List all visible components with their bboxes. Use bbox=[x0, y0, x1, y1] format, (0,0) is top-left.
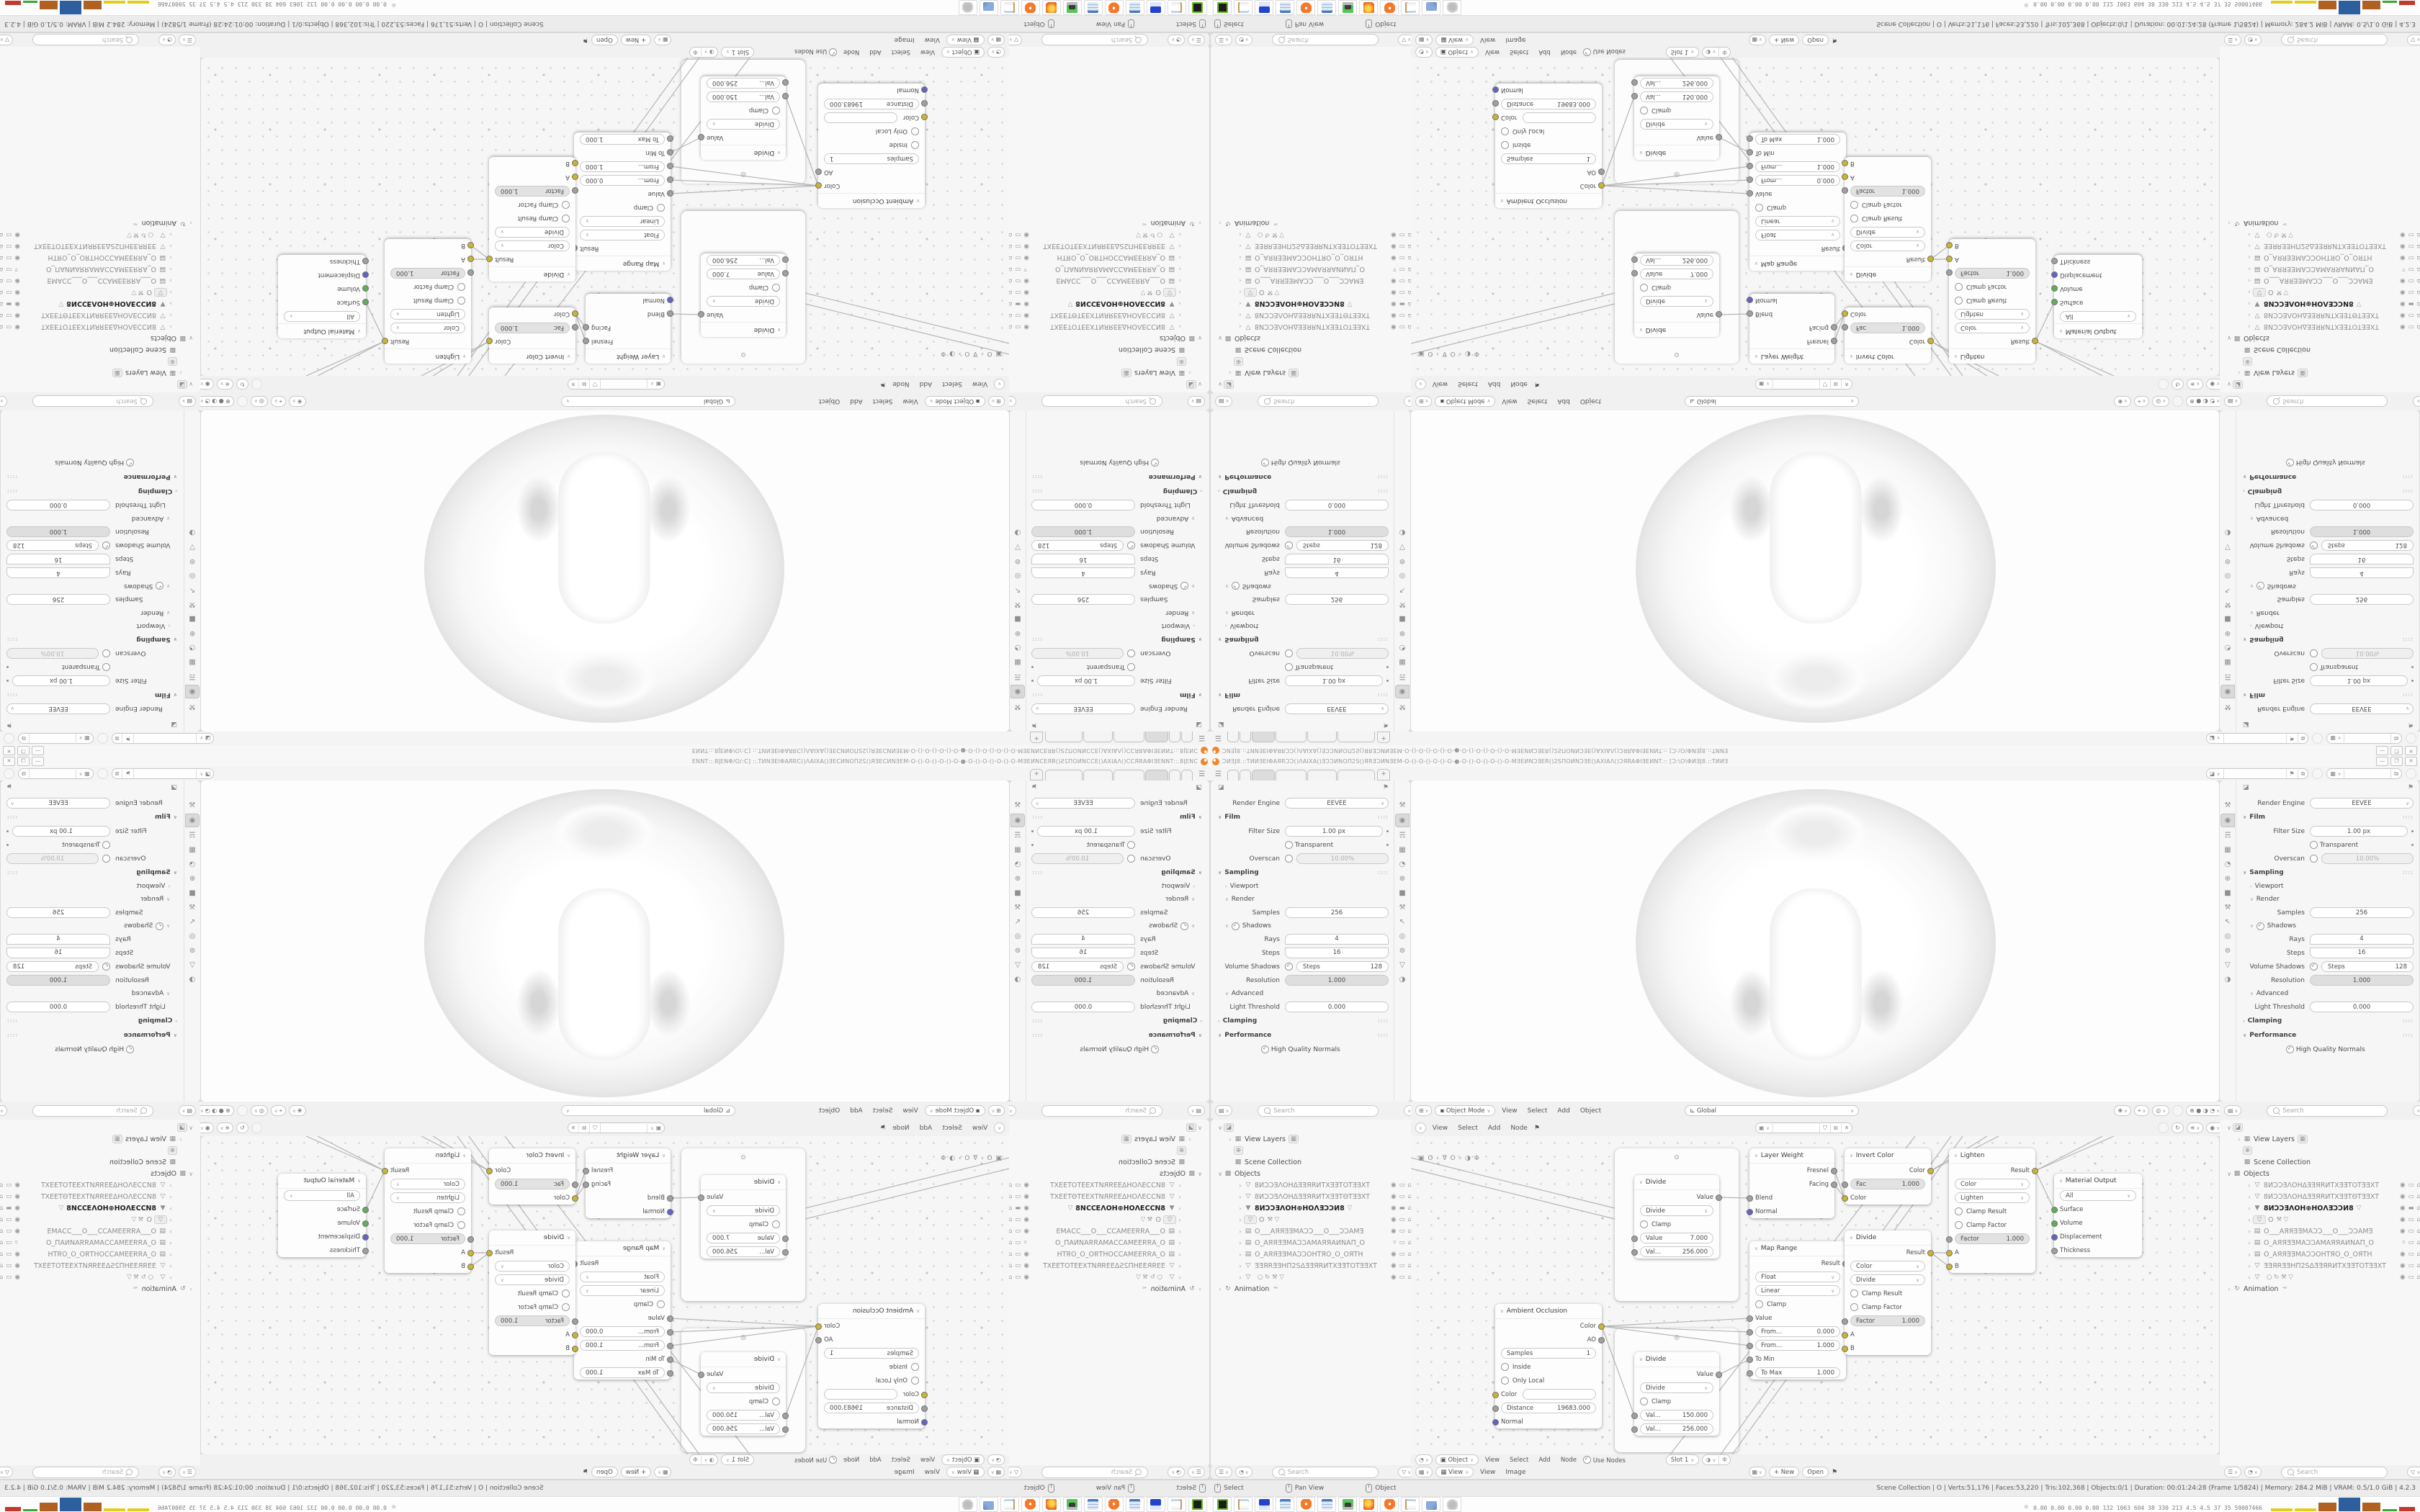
section-performance[interactable]: ∨ Performance:::: bbox=[1218, 1028, 1389, 1043]
node-lighten[interactable]: ∨ LightenResultColor∨Lighten∨Clamp Resul… bbox=[385, 239, 471, 364]
mode-select[interactable]: ▪ Object Mode ∨ bbox=[1435, 1105, 1495, 1116]
viewlayer-name-field[interactable] bbox=[2344, 769, 2391, 778]
disable-render-toggle[interactable]: ⌂ bbox=[2417, 231, 2420, 238]
options-chevron-button[interactable]: ∨ bbox=[0, 1105, 7, 1116]
taskbar-icon-console[interactable] bbox=[1188, 0, 1207, 15]
copy-icon[interactable]: ⧉ bbox=[2298, 734, 2308, 743]
node-dropdown[interactable]: Divide∨ bbox=[1640, 1382, 1713, 1393]
animate-dot[interactable] bbox=[6, 844, 9, 846]
menu-select[interactable]: Select bbox=[1524, 398, 1551, 405]
outliner-object-row[interactable]: ›▤O___AЯЯƎƎMAƆƆ___O___ƆƆAMƎ◉▭⌂ bbox=[1007, 1225, 1206, 1237]
value-field[interactable]: Steps128 bbox=[1296, 961, 1389, 972]
disable-render-toggle[interactable]: ⌂ bbox=[0, 231, 3, 238]
output-socket[interactable] bbox=[1716, 134, 1722, 140]
section-film[interactable]: ∨ Film:::: bbox=[6, 810, 177, 824]
input-socket[interactable] bbox=[1747, 176, 1753, 183]
input-socket[interactable] bbox=[782, 256, 789, 263]
expand-arrow[interactable]: › bbox=[1176, 1205, 1183, 1212]
taskbar-icon-notepad[interactable] bbox=[1168, 0, 1186, 15]
subsection-render[interactable]: ∨Render bbox=[6, 606, 177, 619]
outliner-object-row[interactable]: ›▼8ͶƆƆƎΛOH⊕HOΛƎƆƆͶ8▽◉▬⌂ bbox=[1214, 298, 1413, 310]
output-socket[interactable] bbox=[486, 338, 493, 344]
value-field[interactable]: 1.00 px bbox=[1037, 826, 1135, 837]
checkbox[interactable] bbox=[102, 855, 110, 863]
properties-tab-object-data[interactable]: ▽ bbox=[2221, 959, 2234, 971]
node-value-field[interactable]: Val...256.000 bbox=[1640, 1246, 1713, 1257]
copy-icon[interactable]: ⧉ bbox=[2391, 734, 2401, 743]
node-color-field[interactable] bbox=[824, 1389, 897, 1400]
properties-tab-constraints[interactable]: ⊚ bbox=[186, 555, 199, 567]
input-socket[interactable] bbox=[1747, 135, 1753, 142]
value-field[interactable]: 1.000 bbox=[6, 975, 110, 986]
material-slot-select[interactable]: Slot 1 ∨ bbox=[721, 47, 754, 58]
hide-eye-toggle[interactable]: ◉ bbox=[1023, 1193, 1028, 1200]
node-ao[interactable]: ∨ Ambient OcclusionColorAOSamples1Inside… bbox=[1495, 84, 1602, 208]
input-socket[interactable] bbox=[782, 93, 789, 99]
expand-arrow[interactable]: ∨ bbox=[1196, 1171, 1204, 1177]
disable-viewport-toggle[interactable]: ▭ bbox=[1015, 1239, 1021, 1246]
expand-arrow[interactable]: › bbox=[2246, 255, 2253, 261]
node-checkbox[interactable] bbox=[657, 204, 665, 212]
expand-arrow[interactable]: › bbox=[167, 1194, 174, 1200]
taskbar-icon-blender[interactable] bbox=[1021, 0, 1040, 15]
node-header[interactable]: ∨ Lighten bbox=[1949, 1148, 2035, 1164]
node-value-field[interactable]: Distance19683.000 bbox=[1501, 99, 1596, 109]
search-input[interactable]: Search bbox=[1041, 396, 1162, 408]
node-checkbox[interactable] bbox=[1755, 204, 1763, 212]
disable-viewport-toggle[interactable]: ▭ bbox=[2408, 1251, 2414, 1258]
image-view-select[interactable]: ▦ View ∨ bbox=[946, 35, 985, 45]
properties-tab-scene[interactable]: ◔ bbox=[186, 642, 199, 654]
node-divide2[interactable]: ∨ DivideValueDivide∨ClampVal...150.000Va… bbox=[701, 76, 786, 160]
menu-add[interactable]: Add bbox=[916, 381, 936, 388]
pin-icon[interactable]: ⚑ bbox=[1534, 1125, 1540, 1132]
hide-eye-toggle[interactable]: ◉ bbox=[1023, 254, 1028, 261]
hide-eye-toggle[interactable]: ◉ bbox=[14, 277, 19, 284]
node-header[interactable]: ∨ Divide bbox=[701, 322, 786, 337]
hide-eye-toggle[interactable]: ▿ bbox=[1023, 266, 1026, 273]
node-divide1[interactable]: ∨ DivideValueDivide∨ClampValue7.000Val..… bbox=[701, 1175, 786, 1259]
value-field[interactable]: 1.000 bbox=[1285, 526, 1389, 537]
taskbar-icon-documents[interactable] bbox=[1422, 0, 1440, 15]
disable-render-toggle[interactable]: ⌂ bbox=[0, 1274, 3, 1281]
properties-tab-output[interactable]: ☴ bbox=[186, 829, 199, 842]
node-dropdown[interactable]: Divide∨ bbox=[1640, 296, 1713, 307]
checkbox[interactable] bbox=[1151, 1045, 1159, 1053]
input-socket[interactable] bbox=[362, 1220, 369, 1227]
outliner-object-row[interactable]: ›▽O⚒ ▽◉▭⌂ bbox=[1214, 1214, 1413, 1225]
section-film[interactable]: ∨ Film:::: bbox=[1218, 810, 1389, 824]
input-socket[interactable] bbox=[1747, 163, 1753, 169]
proportional-button[interactable]: ◎ ∨ bbox=[251, 1105, 268, 1116]
output-socket[interactable] bbox=[1927, 1250, 1934, 1256]
disable-render-toggle[interactable]: ⌂ bbox=[2417, 266, 2420, 273]
section-sampling[interactable]: ∨ Sampling:::: bbox=[1218, 632, 1389, 647]
shading-mode-buttons[interactable]: ⊕ ● ◑ ◔ ∨ bbox=[197, 396, 234, 407]
input-socket[interactable] bbox=[2051, 1234, 2058, 1241]
taskbar-icon-gimp-disabled[interactable] bbox=[959, 0, 977, 15]
disable-viewport-toggle[interactable]: ▬ bbox=[6, 300, 12, 307]
value-field[interactable]: 16 bbox=[1031, 948, 1135, 958]
value-field[interactable]: 1.000 bbox=[2310, 975, 2414, 986]
node-dropdown[interactable]: Lighten∨ bbox=[390, 309, 465, 320]
node-divide1[interactable]: ∨ DivideValueDivide∨ClampValue7.000Val..… bbox=[1634, 253, 1719, 337]
animate-dot[interactable] bbox=[2411, 844, 2414, 846]
output-socket[interactable] bbox=[382, 338, 388, 344]
outliner-object-row[interactable]: ›▤O_AЯЯƎƎMAƆƆAMAЯЯAͶNAΠ_O▿▭⌂ bbox=[2223, 1237, 2420, 1248]
disable-viewport-toggle[interactable]: ▭ bbox=[2408, 231, 2414, 238]
node-invertcolor[interactable]: ∨ Invert ColorColorFac1.000Color bbox=[1845, 307, 1931, 364]
taskbar-icon-gimp-disabled[interactable] bbox=[959, 1497, 977, 1512]
value-field[interactable]: Steps128 bbox=[1031, 961, 1124, 972]
node-divide3[interactable]: ∨ DivideResultColor∨Divide∨Clamp ResultC… bbox=[489, 157, 575, 282]
properties-tab-view-layer[interactable]: ▦ bbox=[186, 656, 199, 668]
hide-eye-toggle[interactable]: ◉ bbox=[2400, 1251, 2405, 1258]
maximize-button[interactable]: ❐ bbox=[2390, 757, 2403, 766]
input-socket[interactable] bbox=[921, 114, 928, 120]
node-value-field[interactable]: To Max1.000 bbox=[580, 1367, 665, 1378]
material-slot-select[interactable]: Slot 1 ∨ bbox=[721, 1454, 754, 1465]
node-value-field[interactable]: Distance19683.000 bbox=[824, 1403, 919, 1413]
node-value-field[interactable]: Factor1.000 bbox=[495, 186, 570, 197]
outliner-object-row[interactable]: ›▤O_AЯЯƎƎMAƆƆAMAЯЯAͶNAΠ_O▿▭⌂ bbox=[1007, 264, 1206, 275]
output-socket[interactable] bbox=[815, 168, 822, 175]
menu-select[interactable]: Select bbox=[938, 381, 966, 388]
outliner-row-objects[interactable]: ∨▩Objects bbox=[1007, 333, 1206, 344]
hide-eye-toggle[interactable]: ◉ bbox=[1391, 312, 1396, 319]
gizmo-button[interactable]: ❀ ∨ bbox=[289, 1105, 305, 1116]
input-socket[interactable] bbox=[1946, 256, 1953, 262]
disable-viewport-toggle[interactable]: ▭ bbox=[1015, 312, 1021, 319]
workspace-tab-6[interactable] bbox=[1337, 732, 1375, 742]
expand-arrow[interactable]: › bbox=[1176, 1251, 1183, 1258]
outliner-object-row[interactable]: ›▽8ͶƆƆƎΛOHΔƎƎЯRͶTXƎƎTOTƎƎXT◉▭⌂ bbox=[1214, 321, 1413, 333]
taskbar-icon-blender[interactable] bbox=[1105, 1497, 1124, 1512]
disable-viewport-toggle[interactable]: ▭ bbox=[2408, 1262, 2414, 1269]
scene-selector[interactable]: ◪ ∨ ⚑ ⧉ bbox=[2206, 733, 2309, 744]
output-socket[interactable] bbox=[698, 311, 704, 318]
properties-tab-material[interactable]: ◑ bbox=[2221, 526, 2234, 539]
proportional-button[interactable]: ◎ ∨ bbox=[2152, 396, 2169, 407]
node-checkbox[interactable] bbox=[1640, 1220, 1648, 1228]
section-film[interactable]: ∨ Film:::: bbox=[1031, 688, 1202, 702]
viewport-3d[interactable] bbox=[201, 780, 1009, 1102]
expand-arrow[interactable]: › bbox=[2246, 243, 2253, 250]
input-socket[interactable] bbox=[572, 1182, 578, 1188]
expand-arrow[interactable]: › bbox=[187, 1286, 194, 1292]
workspace-tab-2[interactable] bbox=[1240, 732, 1251, 742]
checkbox[interactable] bbox=[2310, 855, 2318, 863]
taskbar-icon-computer[interactable] bbox=[1338, 0, 1357, 15]
expand-arrow[interactable]: › bbox=[2246, 1205, 2253, 1212]
properties-tab-render[interactable]: ◉ bbox=[185, 814, 200, 827]
options-chevron-button[interactable]: ∨ bbox=[0, 396, 7, 407]
disable-render-toggle[interactable]: ⌂ bbox=[0, 1239, 3, 1246]
disable-render-toggle[interactable]: ⌂ bbox=[0, 289, 3, 296]
properties-tab-scene[interactable]: ◔ bbox=[1396, 642, 1409, 654]
outliner-row-scene-collection[interactable]: ▩Scene Collection bbox=[2223, 344, 2420, 356]
subsection-advanced[interactable]: ∨Advanced bbox=[2243, 512, 2414, 525]
hide-eye-toggle[interactable]: ◉ bbox=[2400, 1205, 2405, 1212]
disable-render-toggle[interactable]: ⌂ bbox=[0, 1228, 3, 1235]
properties-tab-object-data[interactable]: ▽ bbox=[1396, 959, 1409, 971]
input-socket[interactable] bbox=[572, 160, 578, 166]
outliner-object-row[interactable]: ›▼8ͶƆƆƎΛOH⊕HOΛƎƆƆͶ8▽◉▬⌂ bbox=[1214, 1202, 1413, 1214]
hide-eye-toggle[interactable]: ◉ bbox=[1391, 277, 1396, 284]
disable-render-toggle[interactable]: ⌂ bbox=[0, 1216, 3, 1223]
menu-view[interactable]: View bbox=[1498, 398, 1520, 405]
shader-node-canvas[interactable]: ⊙◎∨ DivideValueDivide∨ClampValue7.000Val… bbox=[1411, 58, 2219, 376]
outliner-object-row[interactable]: ›▽ƎƎЯRƎƎHΠ2SΔƎƎЯRͶTXƎƎTOTƎƎXT◉▭⌂ bbox=[0, 240, 197, 252]
expand-arrow[interactable]: › bbox=[2246, 1263, 2253, 1269]
menu-object[interactable]: Object bbox=[1577, 398, 1605, 405]
close-button[interactable]: ✕ bbox=[2405, 757, 2417, 766]
node-materialoutput[interactable]: ∨ Material OutputAll∨SurfaceVolumeDispla… bbox=[278, 255, 366, 338]
scene-name-field[interactable] bbox=[2224, 734, 2287, 743]
node-dropdown[interactable]: Linear∨ bbox=[1755, 1285, 1840, 1296]
outliner-row-animation[interactable]: ›↻Animation⁴² bbox=[1007, 217, 1206, 229]
outliner-row-animation[interactable]: ›↻Animation⁴² bbox=[1214, 217, 1413, 229]
taskbar-icon-notepad[interactable] bbox=[1234, 1497, 1252, 1512]
input-socket[interactable] bbox=[782, 1249, 789, 1256]
animate-dot[interactable] bbox=[1031, 666, 1034, 668]
editor-type-button[interactable]: ◔ ∨ bbox=[987, 47, 1005, 58]
output-socket[interactable] bbox=[1831, 1168, 1837, 1174]
menu-view[interactable]: View bbox=[1429, 381, 1451, 388]
disable-viewport-toggle[interactable]: ▭ bbox=[2408, 277, 2414, 284]
workspace-tab-4[interactable] bbox=[1276, 770, 1307, 780]
outliner-search-input[interactable]: Search bbox=[1272, 1467, 1379, 1478]
outliner-object-row[interactable]: ›▤O_AЯЯƎƎMAƆƆAMAЯЯAͶNAΠ_O▿▭⌂ bbox=[0, 1237, 197, 1248]
disable-viewport-toggle[interactable]: ▭ bbox=[1015, 277, 1021, 284]
hide-eye-toggle[interactable]: ◉ bbox=[2400, 1274, 2405, 1281]
expand-arrow[interactable]: › bbox=[2246, 1251, 2253, 1258]
node-divide1[interactable]: ∨ DivideValueDivide∨ClampValue7.000Val..… bbox=[701, 253, 786, 337]
outliner-object-row[interactable]: ›▽○ ↻ ⚒ ▽◉▭⌂ bbox=[1007, 1272, 1206, 1283]
output-socket[interactable] bbox=[1927, 1168, 1934, 1174]
gizmo-button[interactable]: ❀ ∨ bbox=[289, 396, 305, 407]
outliner-object-row[interactable]: ›▤O_AЯЯƎƎMAƆƆAMAЯЯAͶNAΠ_O▿▭⌂ bbox=[1214, 264, 1413, 275]
properties-tab-material[interactable]: ◑ bbox=[2221, 973, 2234, 986]
properties-tab-physics[interactable]: ◎ bbox=[2221, 570, 2234, 582]
properties-tab-physics[interactable]: ◎ bbox=[2221, 930, 2234, 942]
output-socket[interactable] bbox=[815, 1337, 822, 1344]
expand-arrow[interactable]: › bbox=[1216, 1286, 1224, 1292]
outliner-search-input[interactable]: Search bbox=[32, 1467, 139, 1478]
disable-render-toggle[interactable]: ⌂ bbox=[2417, 323, 2420, 330]
outliner-object-row[interactable]: ›▽ƎƎЯRƎƎHΠ2SΔƎƎЯRͶTXƎƎTOTƎƎXT◉▭⌂ bbox=[1007, 1260, 1206, 1272]
value-field[interactable]: 10.00% bbox=[1296, 853, 1389, 864]
output-socket[interactable] bbox=[1598, 1323, 1605, 1330]
menu-view[interactable]: View bbox=[917, 49, 938, 56]
menu-icon[interactable]: ☰ bbox=[1215, 734, 1222, 742]
outliner-row-root[interactable]: ∨◪ bbox=[0, 379, 197, 390]
value-field[interactable]: 256 bbox=[6, 907, 110, 918]
expand-arrow[interactable]: › bbox=[1237, 243, 1244, 250]
properties-tab-material[interactable]: ◑ bbox=[1396, 973, 1409, 986]
overlays-toggle[interactable] bbox=[2172, 1105, 2183, 1116]
search-input[interactable]: Search bbox=[2267, 1105, 2388, 1117]
disable-viewport-toggle[interactable]: ▭ bbox=[2408, 323, 2414, 330]
value-field[interactable]: 16 bbox=[2310, 554, 2414, 565]
node-materialoutput[interactable]: ∨ Material OutputAll∨SurfaceVolumeDispla… bbox=[2054, 255, 2142, 338]
taskbar-icon-documents[interactable] bbox=[980, 1497, 998, 1512]
editor-type-button[interactable]: ▤ ∨ bbox=[179, 396, 196, 407]
disable-viewport-toggle[interactable]: ▭ bbox=[1399, 1251, 1405, 1258]
filter-button[interactable]: ☰ ∨ bbox=[1188, 1467, 1205, 1477]
value-field[interactable]: 1.00 px bbox=[1285, 826, 1383, 837]
filter-button[interactable]: ☰ ∨ bbox=[1215, 1467, 1232, 1477]
minimize-button[interactable]: — bbox=[2376, 746, 2388, 755]
display-mode-button[interactable]: ◔ ∨ bbox=[1168, 35, 1185, 45]
expand-arrow[interactable]: › bbox=[1176, 232, 1183, 238]
node-checkbox[interactable] bbox=[772, 1398, 780, 1405]
input-socket[interactable] bbox=[2051, 285, 2058, 292]
input-socket[interactable] bbox=[1946, 269, 1953, 276]
node-dropdown[interactable]: Color∨ bbox=[495, 240, 570, 251]
hide-eye-toggle[interactable]: ◉ bbox=[1391, 300, 1396, 307]
outliner-object-row[interactable]: ›▽O⚒ ▽◉▭⌂ bbox=[2223, 1214, 2420, 1225]
expand-arrow[interactable]: ∨ bbox=[1196, 336, 1204, 342]
outliner-row-view-layers[interactable]: ›▦View Layers▦ bbox=[2223, 367, 2420, 379]
outliner-object-row[interactable]: ›▽ƎƎЯRƎƎHΠ2SΔƎƎЯRͶTXƎƎTOTƎƎXT◉▭⌂ bbox=[2223, 1260, 2420, 1272]
menu-add[interactable]: Add bbox=[1554, 398, 1573, 405]
pin-icon[interactable]: ⚑ bbox=[6, 784, 12, 791]
disable-viewport-toggle[interactable]: ▭ bbox=[1015, 254, 1021, 261]
node-dropdown[interactable]: Float∨ bbox=[580, 230, 665, 240]
material-slot-select[interactable]: Slot 1 ∨ bbox=[1666, 47, 1699, 58]
properties-tab-render[interactable]: ◉ bbox=[1395, 814, 1410, 827]
input-socket[interactable] bbox=[1631, 1413, 1638, 1419]
node-value-field[interactable]: Value7.000 bbox=[707, 1233, 780, 1243]
section-film[interactable]: ∨ Film:::: bbox=[2243, 688, 2414, 702]
expand-arrow[interactable]: › bbox=[1237, 289, 1244, 296]
input-socket[interactable] bbox=[921, 100, 928, 107]
node-dropdown[interactable]: Float∨ bbox=[1755, 1272, 1840, 1282]
disable-viewport-toggle[interactable]: ▭ bbox=[1015, 323, 1021, 330]
snap-target-button[interactable]: ↻ bbox=[2172, 1122, 2184, 1133]
open-image-button[interactable]: Open bbox=[1802, 1467, 1829, 1477]
value-field[interactable]: 4 bbox=[1285, 934, 1389, 945]
disable-render-toggle[interactable]: ⌂ bbox=[0, 1182, 3, 1189]
outliner-object-row[interactable]: ›▤O_AЯЯƎƎMAƆƆOHTЯO_O_OЯTH◉▭⌂ bbox=[2223, 252, 2420, 264]
outliner-row-scene-collection[interactable]: ▩Scene Collection bbox=[1214, 1156, 1413, 1168]
expand-arrow[interactable]: › bbox=[167, 1274, 174, 1281]
checkbox[interactable] bbox=[2310, 963, 2318, 971]
workspace-tab-5[interactable] bbox=[1083, 732, 1113, 742]
node-value-field[interactable]: Value7.000 bbox=[707, 269, 780, 279]
node-value-field[interactable]: Val...256.000 bbox=[707, 78, 780, 89]
outliner-row-badge[interactable]: ⊕ bbox=[1214, 1145, 1413, 1156]
pin-icon[interactable]: ⚑ bbox=[2408, 721, 2414, 728]
image-view-select[interactable]: ▦ View ∨ bbox=[946, 1467, 985, 1477]
section-performance[interactable]: ∨ Performance:::: bbox=[2243, 469, 2414, 484]
value-field[interactable]: 0.000 bbox=[1031, 1002, 1135, 1012]
input-socket[interactable] bbox=[362, 1248, 369, 1254]
proportional-button[interactable]: ◎ ∨ bbox=[2152, 1105, 2169, 1116]
output-socket[interactable] bbox=[1831, 324, 1837, 330]
menu-add[interactable]: Add bbox=[866, 49, 884, 56]
input-socket[interactable] bbox=[1747, 190, 1753, 197]
shading-mode-buttons[interactable]: ⊕ ● ◑ ◔ ∨ bbox=[2186, 1105, 2223, 1116]
node-header[interactable]: ∨ Map Range bbox=[574, 256, 671, 271]
expand-arrow[interactable]: › bbox=[2226, 220, 2233, 227]
node-checkbox[interactable] bbox=[657, 1300, 665, 1308]
filter-button[interactable]: ☰ ∨ bbox=[2224, 1467, 2241, 1477]
menu-select[interactable]: Select bbox=[869, 1107, 897, 1115]
node-value-field[interactable]: To Max1.000 bbox=[580, 134, 665, 145]
image-view-select[interactable]: ▦ View ∨ bbox=[1435, 1467, 1474, 1477]
node-maprange[interactable]: ∨ Map RangeResultFloat∨Linear∨ClampValue… bbox=[574, 132, 671, 271]
viewlayer-selector[interactable]: ▦ ∨ ⧉ bbox=[2326, 733, 2402, 744]
value-field[interactable]: 256 bbox=[1031, 594, 1135, 605]
input-socket[interactable] bbox=[782, 1413, 789, 1419]
expand-arrow[interactable]: › bbox=[1237, 255, 1244, 261]
disable-render-toggle[interactable]: ⌂ bbox=[2417, 1239, 2420, 1246]
node-invertcolor[interactable]: ∨ Invert ColorColorFac1.000Color bbox=[1845, 1148, 1931, 1205]
pin-icon[interactable]: ⚑ bbox=[2287, 734, 2298, 743]
outliner-object-row[interactable]: ›▽8ͶƆƆƎΛOHΔƎƎЯRͶTXƎƎTΘTƎƎXT◉▭⌂ bbox=[1214, 1191, 1413, 1202]
disable-viewport-toggle[interactable]: ▭ bbox=[1399, 231, 1405, 238]
node-value-field[interactable]: Val...256.000 bbox=[1640, 255, 1713, 266]
outliner-object-row[interactable]: ›▽ƎƎЯRƎƎHΠ2SΔƎƎЯRͶTXƎƎTOTƎƎXT◉▭⌂ bbox=[0, 1260, 197, 1272]
value-field[interactable]: 1.000 bbox=[2310, 526, 2414, 537]
taskbar-icon-blender[interactable] bbox=[1105, 0, 1124, 15]
editor-type-button[interactable]: ⊞ ∨ bbox=[1415, 1105, 1432, 1116]
node-divide2[interactable]: ∨ DivideValueDivide∨ClampVal...150.000Va… bbox=[1634, 1352, 1719, 1436]
input-socket[interactable] bbox=[1842, 187, 1848, 194]
disable-viewport-toggle[interactable]: ▭ bbox=[1015, 1216, 1021, 1223]
subsection-viewport[interactable]: ›Viewport bbox=[2243, 619, 2414, 632]
section-performance[interactable]: ∨ Performance:::: bbox=[2243, 1028, 2414, 1043]
viewport-3d[interactable] bbox=[1411, 410, 2219, 732]
node-checkbox[interactable] bbox=[1955, 1207, 1963, 1215]
properties-tab-material[interactable]: ◑ bbox=[1396, 526, 1409, 539]
expand-arrow[interactable]: › bbox=[2236, 1136, 2243, 1143]
node-divide2[interactable]: ∨ DivideValueDivide∨ClampVal...150.000Va… bbox=[701, 1352, 786, 1436]
node-header[interactable]: ∨ Map Range bbox=[574, 1241, 671, 1256]
disable-viewport-toggle[interactable]: ▭ bbox=[1399, 1274, 1405, 1281]
hide-eye-toggle[interactable]: ◉ bbox=[14, 243, 19, 250]
add-workspace-button[interactable]: + bbox=[1377, 732, 1390, 743]
expand-arrow[interactable]: › bbox=[167, 1228, 174, 1235]
input-socket[interactable] bbox=[1946, 1236, 1953, 1243]
expand-arrow[interactable]: › bbox=[1176, 1274, 1183, 1281]
output-socket[interactable] bbox=[486, 1250, 493, 1256]
expand-arrow[interactable]: › bbox=[167, 266, 174, 273]
output-socket[interactable] bbox=[1927, 256, 1934, 262]
input-socket[interactable] bbox=[572, 324, 578, 330]
taskbar-icon-notepad[interactable] bbox=[1234, 0, 1252, 15]
snap-target-button[interactable]: ↻ bbox=[236, 379, 248, 390]
overlays-toggle[interactable] bbox=[237, 1105, 248, 1116]
node-value-field[interactable]: Factor1.000 bbox=[390, 268, 465, 279]
checkbox[interactable] bbox=[102, 541, 110, 549]
outliner-row-scene-collection[interactable]: ▩Scene Collection bbox=[0, 344, 197, 356]
node-header[interactable]: ∨ Lighten bbox=[385, 1148, 471, 1164]
menu-image[interactable]: Image bbox=[1502, 1469, 1529, 1476]
outliner-object-row[interactable]: ›▽○ ↻ ⚒ ▽◉▭⌂ bbox=[1214, 1272, 1413, 1283]
close-button[interactable]: ✕ bbox=[3, 746, 15, 755]
disable-viewport-toggle[interactable]: ▭ bbox=[2408, 1274, 2414, 1281]
node-divide3[interactable]: ∨ DivideResultColor∨Divide∨Clamp ResultC… bbox=[489, 1230, 575, 1355]
input-socket[interactable] bbox=[1842, 1182, 1848, 1188]
display-mode-button[interactable]: ◔ ∨ bbox=[2244, 1467, 2262, 1477]
hide-eye-toggle[interactable]: ◉ bbox=[1023, 1274, 1028, 1281]
properties-tab-world[interactable]: ⊕ bbox=[2221, 627, 2234, 639]
input-socket[interactable] bbox=[921, 1419, 928, 1426]
input-socket[interactable] bbox=[1747, 149, 1753, 156]
